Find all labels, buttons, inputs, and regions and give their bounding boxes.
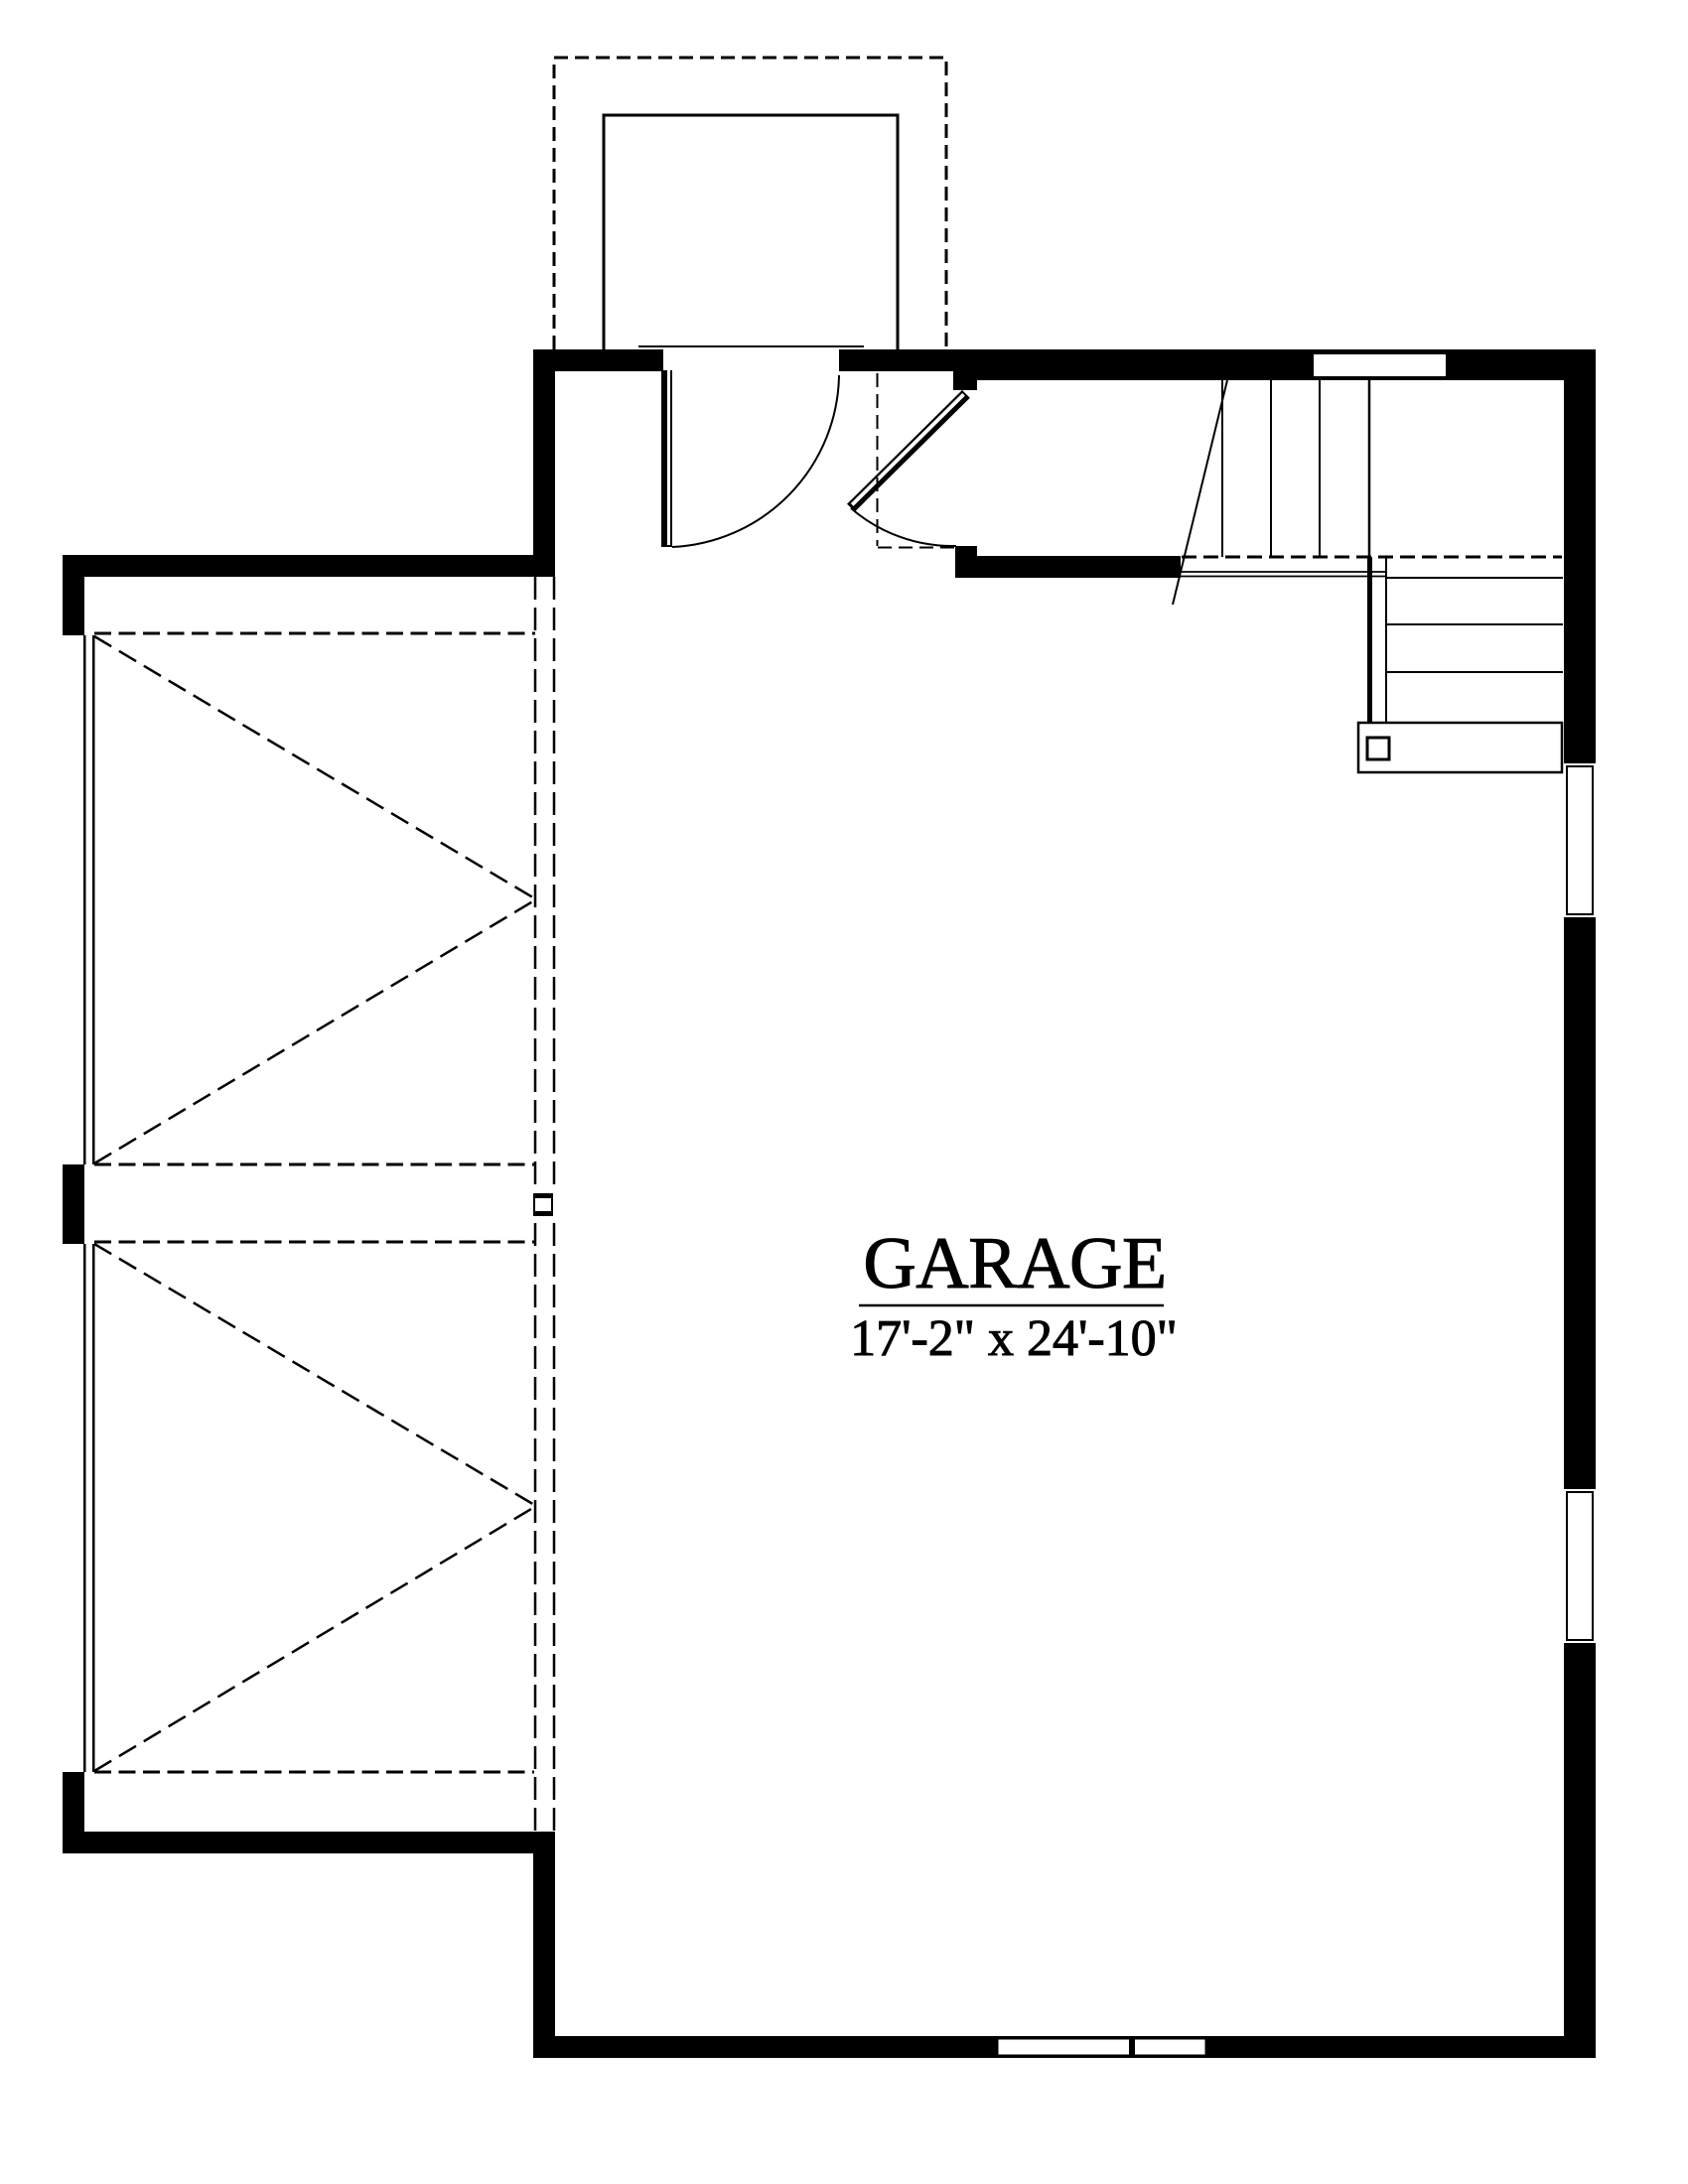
svg-text:17'-2" x 24'-10": 17'-2" x 24'-10" bbox=[850, 1310, 1178, 1367]
svg-text:GARAGE: GARAGE bbox=[863, 1223, 1166, 1304]
